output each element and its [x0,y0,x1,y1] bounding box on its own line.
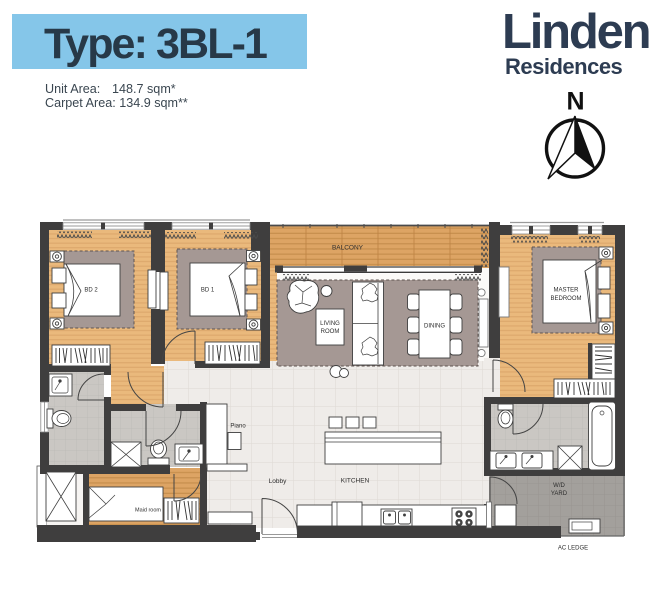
svg-text:BD 2: BD 2 [84,288,98,294]
svg-text:Maid room: Maid room [135,508,161,514]
svg-text:N: N [566,88,584,116]
svg-text:Lobby: Lobby [269,478,287,485]
svg-text:ROOM: ROOM [321,329,340,335]
svg-text:BEDROOM: BEDROOM [550,296,581,302]
svg-text:BD 1: BD 1 [201,288,215,294]
svg-text:Piano: Piano [230,424,246,430]
svg-text:DINING: DINING [424,324,445,330]
svg-text:MASTER: MASTER [553,288,579,294]
svg-text:W/D: W/D [553,483,565,489]
svg-text:BALCONY: BALCONY [332,245,364,252]
svg-text:AC LEDGE: AC LEDGE [558,546,588,552]
svg-text:LIVING: LIVING [320,321,340,327]
svg-text:KITCHEN: KITCHEN [341,478,370,485]
svg-text:YARD: YARD [551,491,568,497]
